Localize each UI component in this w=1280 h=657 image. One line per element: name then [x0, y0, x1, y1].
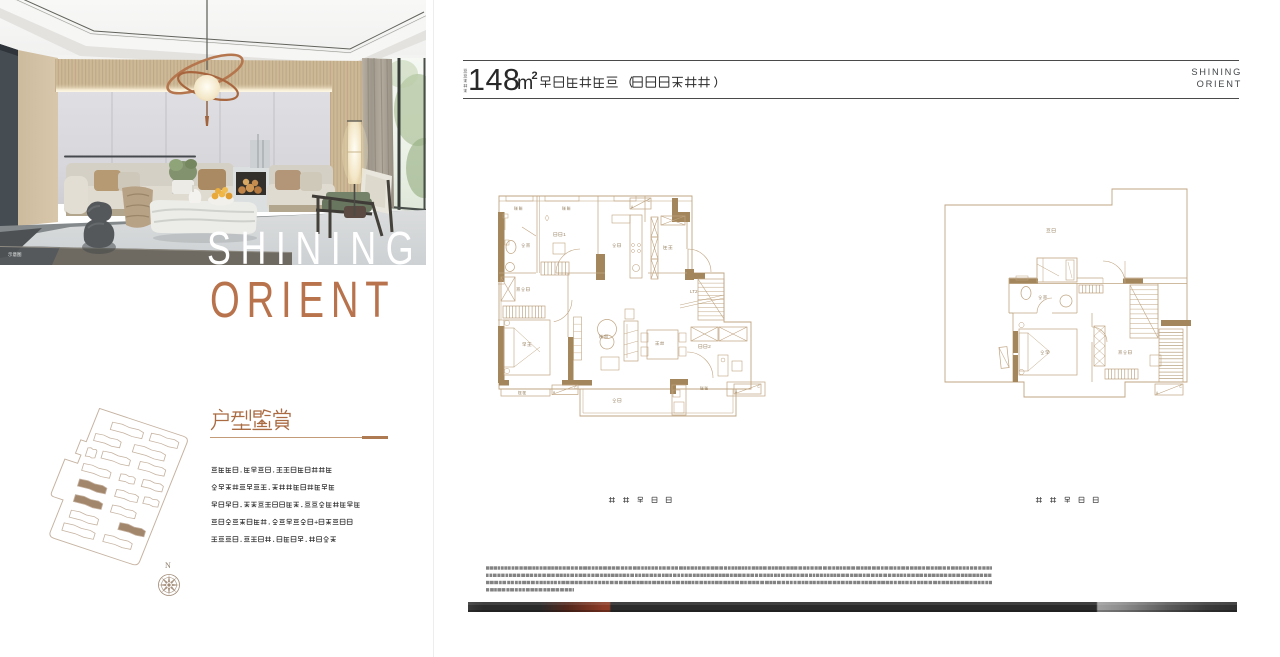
svg-text:1: 1	[563, 232, 566, 238]
svg-text:2: 2	[708, 344, 711, 350]
svg-text:LT2: LT2	[690, 289, 698, 294]
svg-text:N: N	[165, 561, 171, 570]
svg-text:示意图: 示意图	[8, 251, 22, 258]
svg-text:A: A	[1156, 391, 1159, 395]
svg-text:A: A	[553, 391, 556, 395]
svg-text:+: +	[314, 520, 318, 527]
svg-text:A: A	[735, 390, 738, 394]
svg-text:C: C	[758, 385, 761, 389]
svg-text:C: C	[1180, 385, 1183, 389]
